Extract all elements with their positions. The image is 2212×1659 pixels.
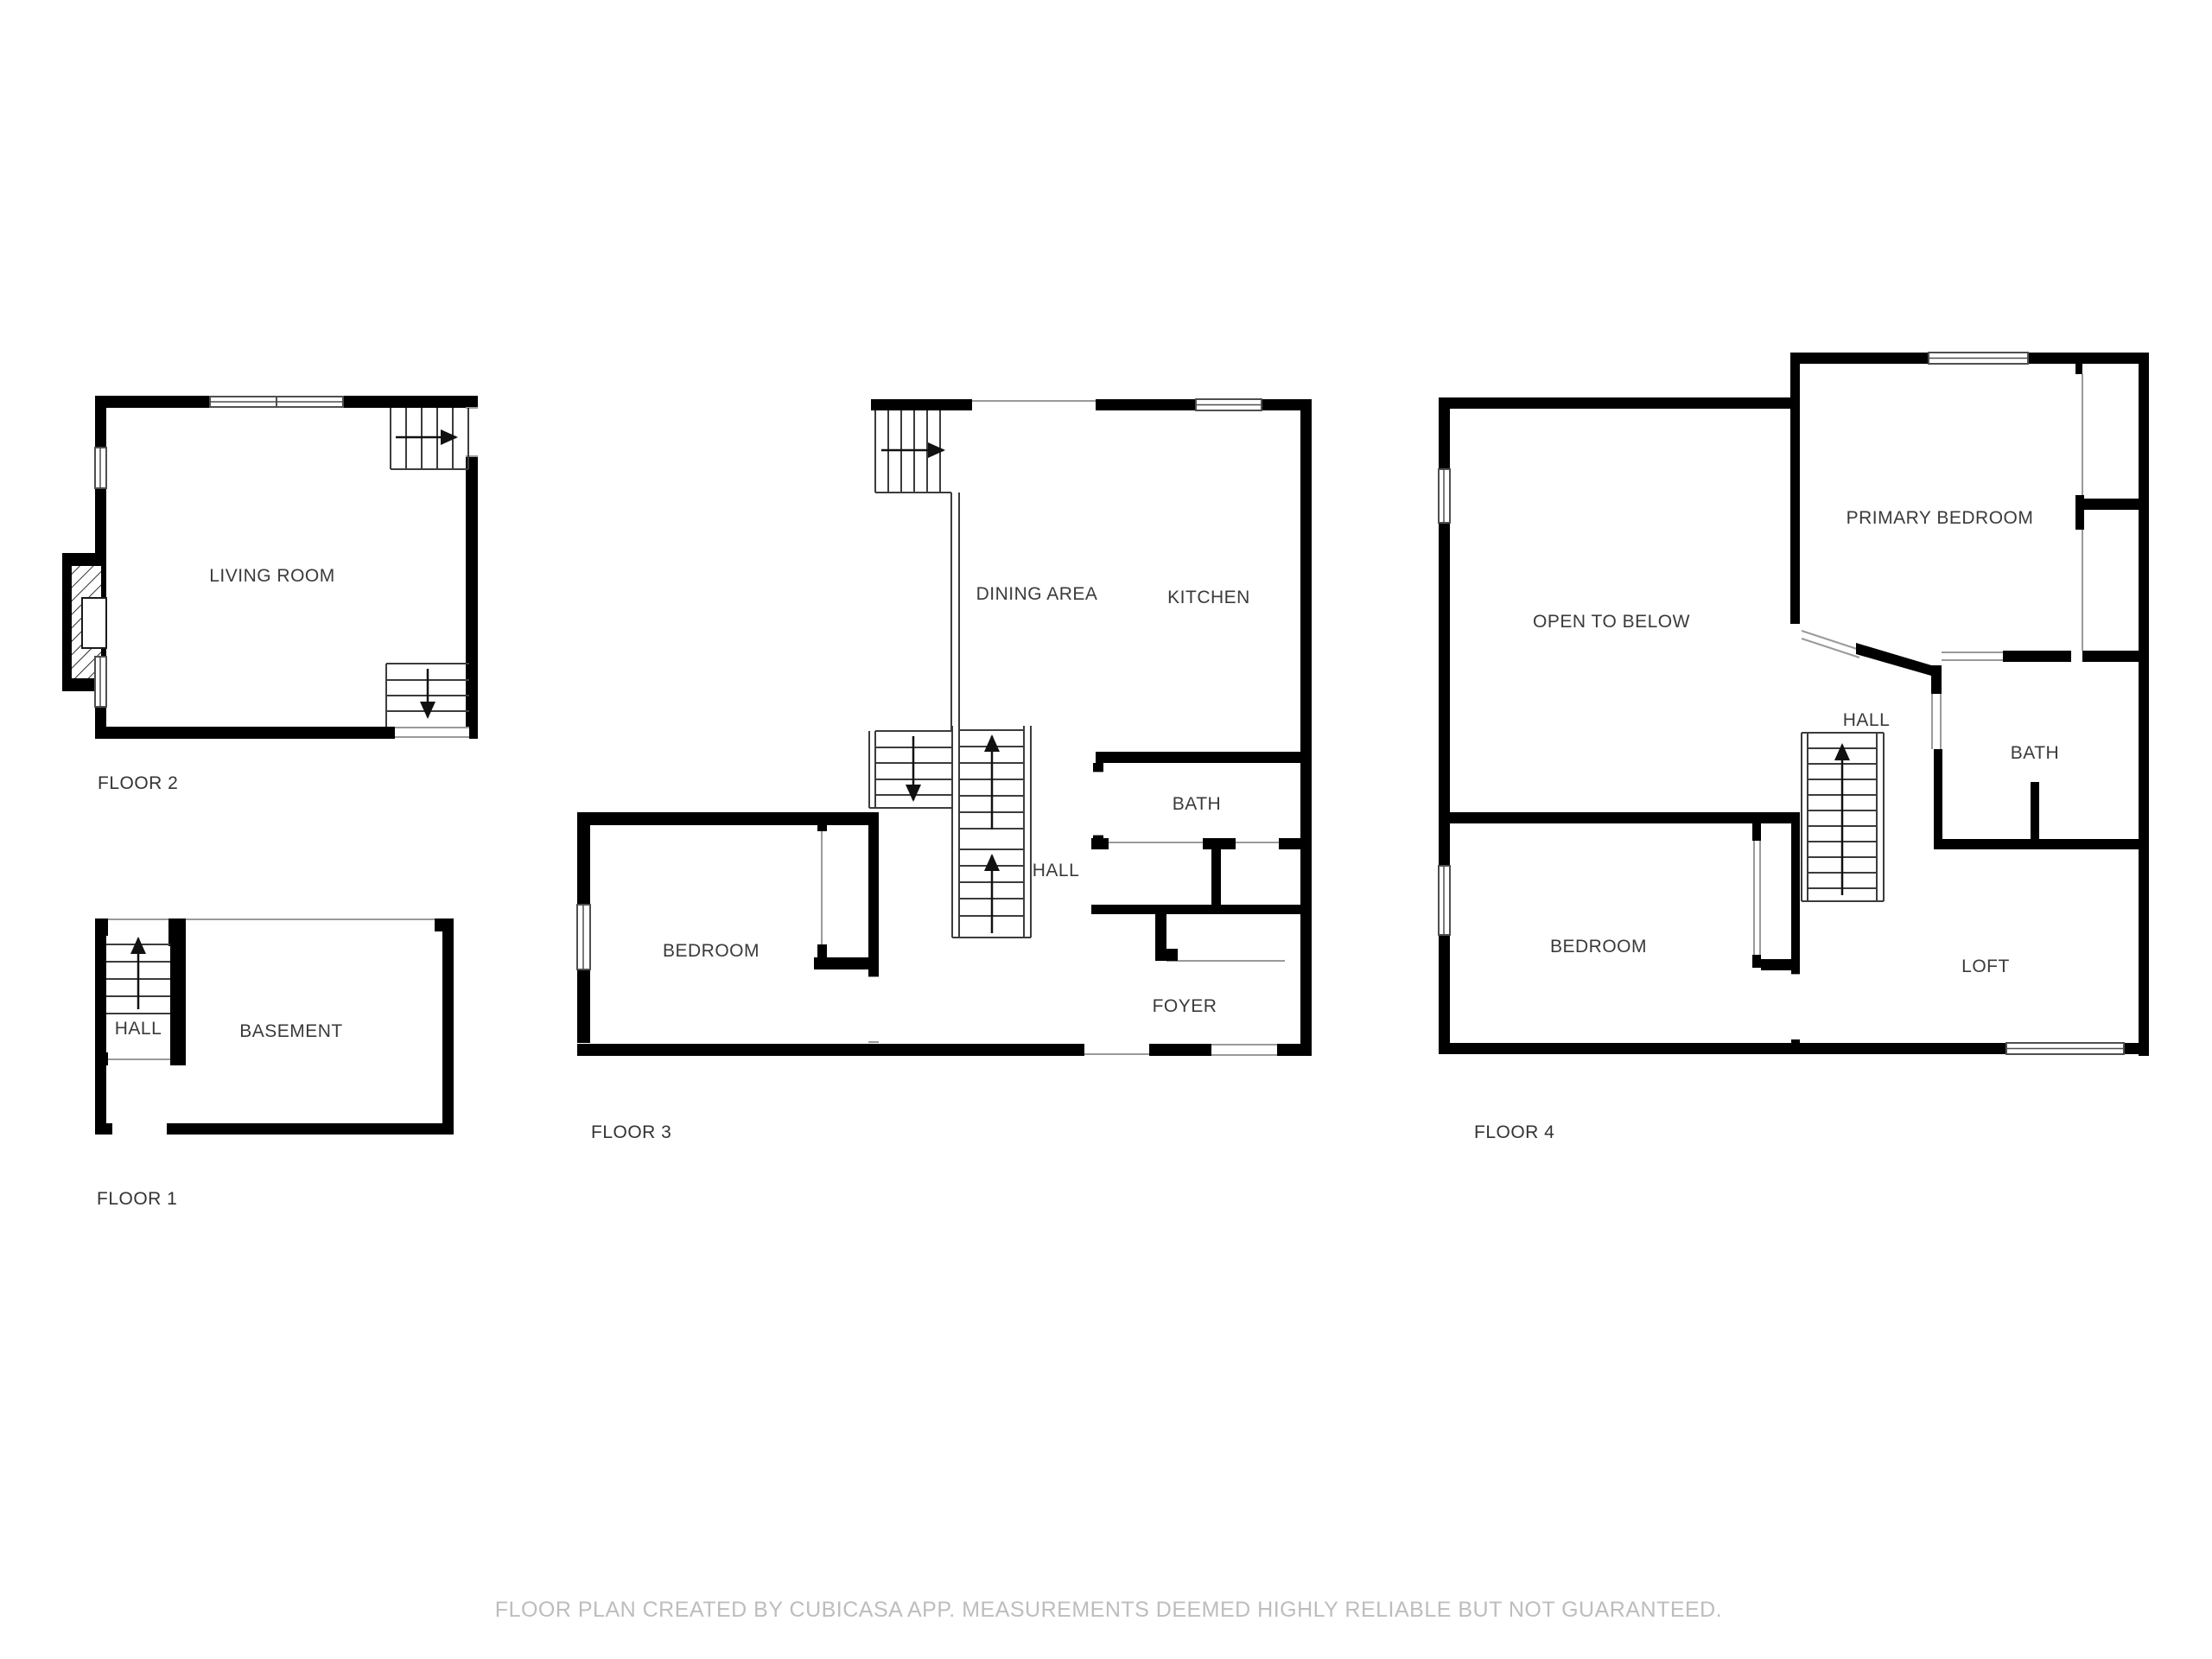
floor-2-windows <box>95 397 343 707</box>
floor-4-plan: OPEN TO BELOW PRIMARY BEDROOM HALL BATH … <box>1439 353 2149 1142</box>
room-label-basement: BASEMENT <box>239 1021 343 1041</box>
room-label-hall: HALL <box>1033 861 1080 880</box>
floor-3-stairs-down <box>869 731 952 808</box>
floor-2-plan: LIVING ROOM FLOOR 2 <box>62 396 478 793</box>
room-label-living-room: LIVING ROOM <box>209 566 335 586</box>
floor-3-plan: DINING AREA KITCHEN BATH HALL BEDROOM FO… <box>577 399 1312 1142</box>
floor-2-stairs-up <box>391 408 468 469</box>
disclaimer-text: FLOOR PLAN CREATED BY CUBICASA APP. MEAS… <box>495 1598 1722 1622</box>
room-label-kitchen: KITCHEN <box>1167 588 1250 607</box>
angled-wall <box>1856 643 1937 677</box>
floor-3-stairs-top <box>875 410 951 493</box>
room-label-primary-bedroom: PRIMARY BEDROOM <box>1847 508 2034 528</box>
floor-4-stairs <box>1802 733 1884 901</box>
floor-plan-page: LIVING ROOM FLOOR 2 HALL BASEMENT FLOOR … <box>0 0 2212 1659</box>
floor-3-stairs-up <box>952 726 1031 938</box>
room-label-loft: LOFT <box>1961 957 2010 976</box>
floor-4-windows <box>1439 353 2124 1054</box>
room-label-bath: BATH <box>1173 794 1221 814</box>
floor-3-windows <box>577 399 1262 969</box>
floor-2-stairs-down <box>386 664 469 727</box>
floor-4-label: FLOOR 4 <box>1474 1122 1554 1142</box>
room-label-bath: BATH <box>2011 743 2059 763</box>
room-label-dining-area: DINING AREA <box>976 584 1098 604</box>
room-label-bedroom: BEDROOM <box>663 941 760 961</box>
room-label-open-to-below: OPEN TO BELOW <box>1533 612 1690 632</box>
room-label-hall: HALL <box>115 1019 162 1039</box>
floor-4-walls <box>1439 353 2149 1056</box>
floor-plan-svg: LIVING ROOM FLOOR 2 HALL BASEMENT FLOOR … <box>0 0 2212 1659</box>
room-label-foyer: FOYER <box>1153 996 1217 1016</box>
stairwell-railing <box>951 493 959 731</box>
floor-1-stairs <box>106 938 170 1014</box>
floor-2-label: FLOOR 2 <box>98 773 178 793</box>
room-label-bedroom: BEDROOM <box>1550 937 1647 957</box>
room-label-hall: HALL <box>1843 710 1891 730</box>
floor-1-label: FLOOR 1 <box>97 1189 177 1209</box>
floor-3-label: FLOOR 3 <box>591 1122 671 1142</box>
floor-1-plan: HALL BASEMENT FLOOR 1 <box>95 918 454 1209</box>
